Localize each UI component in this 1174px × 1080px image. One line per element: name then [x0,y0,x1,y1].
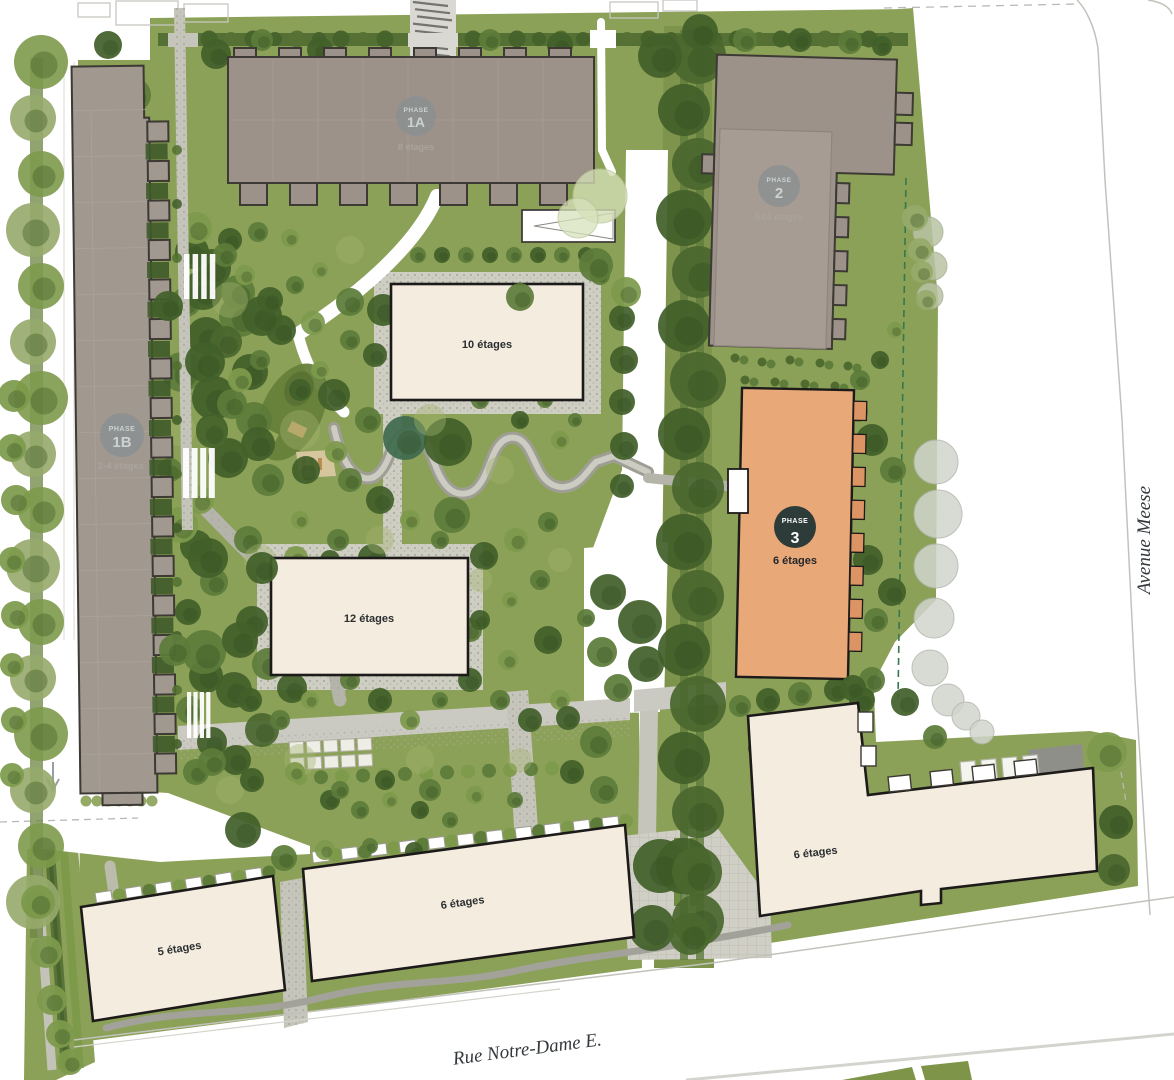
svg-text:PHASE: PHASE [404,107,429,114]
svg-text:2-4 étages: 2-4 étages [98,461,144,472]
svg-text:1B: 1B [112,434,131,451]
svg-text:PHASE: PHASE [109,426,136,433]
svg-text:2: 2 [775,185,783,202]
svg-text:PHASE: PHASE [782,518,809,525]
svg-text:10 étages: 10 étages [462,339,512,351]
svg-text:5&6 étages: 5&6 étages [755,212,803,222]
svg-text:6 étages: 6 étages [773,555,817,567]
svg-text:1A: 1A [407,114,425,130]
svg-text:Avenue Meese: Avenue Meese [1134,486,1155,596]
svg-text:PHASE: PHASE [767,177,792,184]
svg-text:8 étages: 8 étages [398,142,434,152]
svg-text:3: 3 [791,530,800,547]
svg-text:12 étages: 12 étages [344,613,394,625]
